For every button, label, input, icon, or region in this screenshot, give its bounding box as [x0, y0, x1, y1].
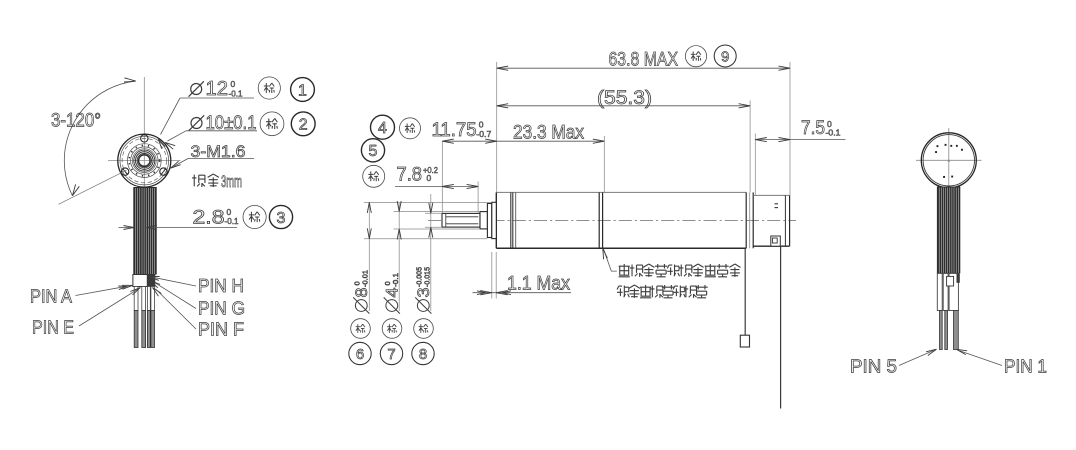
svg-text:6: 6: [356, 346, 364, 363]
svg-text:8: 8: [419, 346, 427, 363]
svg-text:7.8: 7.8: [397, 165, 423, 186]
svg-text:4: 4: [378, 120, 387, 137]
svg-text:0: 0: [479, 120, 484, 130]
svg-text:7: 7: [387, 346, 395, 363]
svg-text:-0.7: -0.7: [476, 129, 491, 139]
svg-text:-0.01: -0.01: [361, 270, 370, 287]
svg-text:9: 9: [721, 48, 729, 65]
svg-text:63.8 MAX: 63.8 MAX: [609, 49, 679, 70]
svg-text:7.5: 7.5: [801, 118, 825, 139]
svg-text:-0.1: -0.1: [229, 89, 243, 99]
svg-text:-0.1: -0.1: [225, 216, 239, 226]
svg-text:-0.1: -0.1: [391, 273, 400, 287]
svg-text:11.75: 11.75: [432, 120, 477, 141]
svg-text:3-120°: 3-120°: [51, 111, 101, 132]
svg-text:3: 3: [277, 210, 286, 227]
svg-text:PIN 1: PIN 1: [1004, 357, 1047, 377]
svg-text:PIN G: PIN G: [198, 299, 245, 319]
svg-text:PIN E: PIN E: [32, 318, 74, 338]
svg-text:4: 4: [383, 288, 402, 298]
svg-text:5: 5: [369, 143, 378, 160]
svg-text:8: 8: [352, 288, 371, 298]
svg-text:1.1 Max: 1.1 Max: [507, 273, 570, 294]
svg-text:3mm: 3mm: [221, 172, 242, 191]
svg-text:0: 0: [231, 79, 236, 89]
svg-text:-0.1: -0.1: [826, 128, 841, 138]
svg-text:-0.015: -0.015: [423, 267, 432, 287]
svg-text:12: 12: [206, 78, 229, 100]
svg-text:PIN A: PIN A: [30, 287, 72, 307]
svg-text:0: 0: [427, 173, 432, 183]
svg-text:2: 2: [299, 117, 308, 134]
svg-text:23.3 Max: 23.3 Max: [513, 122, 584, 143]
svg-text:1: 1: [298, 82, 307, 99]
svg-text:2.8: 2.8: [193, 208, 225, 229]
svg-text:PIN F: PIN F: [198, 320, 244, 340]
svg-text:PIN 5: PIN 5: [850, 357, 897, 377]
svg-text:PIN H: PIN H: [198, 276, 244, 296]
svg-text:(55.3): (55.3): [597, 88, 652, 109]
svg-text:3: 3: [414, 288, 433, 298]
